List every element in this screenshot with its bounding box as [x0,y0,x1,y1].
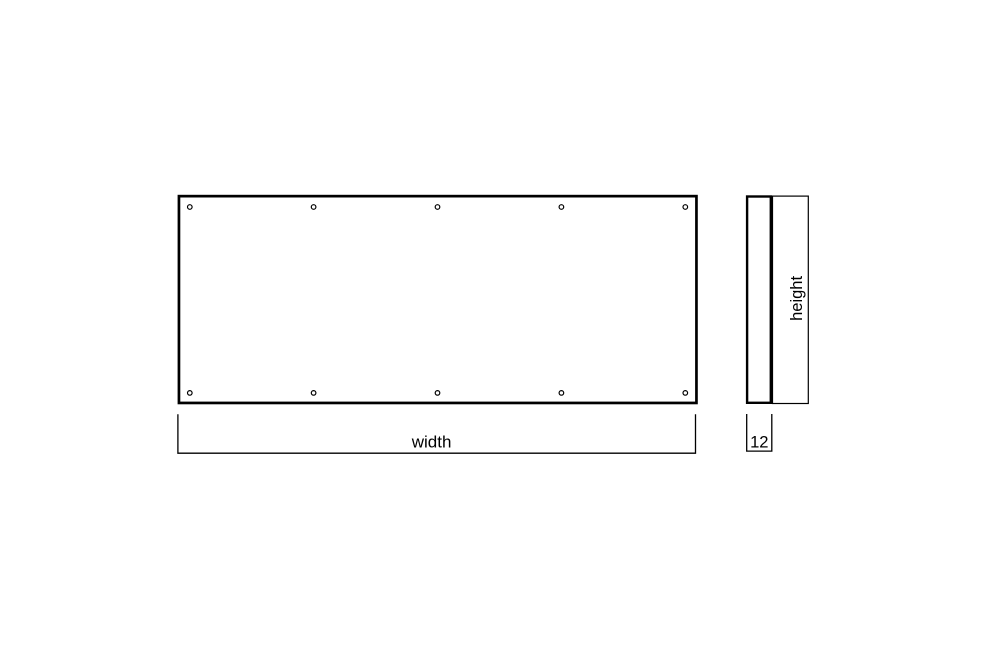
svg-text:width: width [411,432,452,451]
svg-text:12: 12 [750,433,768,452]
svg-text:height: height [788,276,806,321]
